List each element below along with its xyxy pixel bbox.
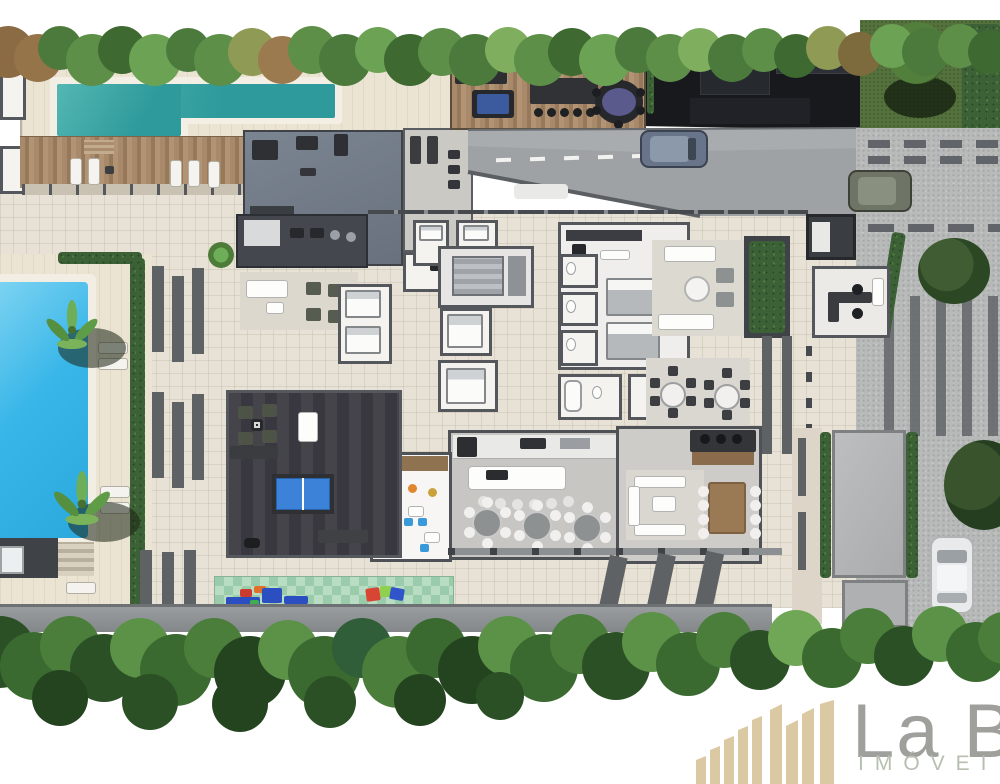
grill-burners: [700, 434, 710, 444]
dark-box-interior: [812, 222, 830, 252]
white-sofa: [634, 476, 686, 488]
armchair: [306, 282, 321, 295]
table-chairs: [582, 502, 593, 513]
hatchback-windshield: [688, 138, 696, 160]
office-desk-return: [828, 292, 839, 322]
bar-stools: [534, 108, 543, 117]
foosball-table: [298, 412, 318, 442]
bistro-chairs: [722, 368, 732, 378]
bathtub: [564, 380, 582, 412]
logo-building-icon: [696, 700, 848, 784]
hall-fridge: [457, 437, 477, 457]
bistro-table: [714, 384, 740, 410]
armchair: [262, 430, 277, 443]
island-cooktop: [486, 470, 508, 480]
gym-bench: [300, 168, 316, 176]
sun-lounger: [208, 161, 220, 188]
white-vehicle-roof: [514, 184, 568, 199]
pergola-shadow-row: [22, 184, 260, 195]
bistro-table: [660, 382, 686, 408]
outdoor-chair: [716, 292, 734, 307]
hall-sink: [560, 438, 590, 449]
walkway-stripe: [192, 394, 204, 480]
roof-skylight: [244, 220, 280, 246]
gym-bench-press: [296, 136, 318, 150]
pool-cabana: [0, 546, 24, 574]
staircase: [452, 256, 504, 296]
armchair: [306, 308, 321, 321]
treadmill: [410, 136, 421, 164]
walkway-stripe-long: [762, 336, 772, 454]
sun-lounger: [88, 158, 100, 185]
office-shelf: [872, 278, 884, 306]
kids-table: [408, 506, 424, 517]
toy-ball: [428, 488, 437, 497]
plan-fence-top: [368, 210, 808, 214]
stair-landing: [508, 256, 526, 296]
kitchen-island: [600, 250, 630, 260]
potted-palm: [208, 242, 234, 268]
roof-chair: [290, 228, 304, 238]
sun-lounger: [70, 158, 82, 185]
office-chair: [852, 284, 863, 295]
round-dining-table: [522, 511, 552, 541]
poker-table-top: [602, 88, 636, 116]
wood-deck: [20, 136, 256, 188]
paver-strip-row: [868, 156, 1000, 164]
walkway-stripe: [172, 402, 184, 488]
coffee-table: [652, 496, 676, 512]
sun-lounger: [170, 160, 182, 187]
card-table: [251, 419, 263, 431]
roof-sphere: [330, 230, 340, 240]
garage-hedge-right: [906, 432, 918, 578]
garage-walkway-stripe: [798, 438, 806, 496]
garage-walkway-stripe: [798, 512, 806, 570]
bed: [345, 290, 381, 318]
office-chair: [852, 308, 863, 319]
white-sofa: [634, 524, 686, 536]
garage-roof: [832, 430, 906, 578]
pingpong-net-line: [302, 478, 304, 510]
toilet: [566, 300, 576, 313]
garage-hedge-left: [820, 432, 831, 578]
kids-table: [424, 532, 440, 543]
outdoor-chair: [716, 268, 734, 283]
bathroom: [560, 330, 598, 366]
outdoor-sofa: [658, 314, 714, 330]
logo-tagline-text: IMÓVEI: [858, 752, 998, 776]
coffee-table: [266, 302, 284, 314]
table-chairs: [482, 497, 493, 508]
tree-row-bottom: [0, 582, 1000, 760]
toy-orange: [408, 484, 417, 493]
roof-sphere: [346, 232, 356, 242]
gym-squat-rack: [334, 134, 348, 156]
suv-car-roof: [858, 177, 896, 205]
toy-kart: [244, 538, 260, 548]
outdoor-sofa: [664, 246, 716, 262]
toilet: [592, 386, 602, 399]
wood-steps: [84, 140, 114, 154]
paver-strip-row: [868, 140, 1000, 148]
walkway-stripe: [172, 276, 184, 362]
site-plan-render: La B IMÓVEI: [0, 0, 1000, 784]
roof-chair: [310, 228, 324, 238]
sun-lounger: [188, 160, 200, 187]
hall-fence-row: [448, 548, 782, 555]
walkway-stripe-long: [782, 336, 792, 454]
bed: [345, 326, 381, 354]
dining-chairs: [698, 486, 709, 497]
treadmill: [427, 136, 438, 164]
kitchen-counter: [566, 230, 642, 241]
white-car-windshield: [937, 550, 967, 563]
toilet: [566, 338, 576, 351]
dark-sofa: [318, 530, 368, 543]
side-table: [105, 166, 114, 174]
tree-over-parking: [918, 238, 990, 304]
palm-trees: [30, 300, 170, 560]
billiards-felt: [477, 94, 509, 114]
lap-pool-water2: [57, 84, 181, 136]
paver-strips-vertical: [884, 296, 1000, 436]
armchair: [262, 404, 277, 417]
bed: [419, 225, 443, 241]
wood-dining-table: [708, 482, 746, 534]
toilet: [566, 262, 576, 275]
kids-chair-blue: [420, 544, 429, 552]
round-dining-table: [572, 513, 602, 543]
gym-cable-machine: [252, 140, 278, 160]
armchair: [238, 406, 253, 419]
bbq-cabinet-wood: [692, 452, 754, 465]
hall-island-bar: [468, 466, 566, 490]
hall-cooktop: [520, 438, 546, 449]
table-chairs: [532, 500, 543, 511]
white-sofa: [628, 486, 640, 526]
paver-strip-row: [868, 224, 1000, 232]
bistro-chairs: [668, 366, 678, 376]
lounge-sofa: [246, 280, 288, 298]
hatchback-car-roof: [650, 136, 690, 162]
bed: [463, 225, 489, 241]
kids-chair-blue: [404, 518, 413, 526]
tree-row-top: [0, 8, 1000, 90]
armchair: [238, 432, 253, 445]
hedge-planter: [749, 241, 785, 333]
hedge-row-top: [58, 252, 142, 264]
dark-sofa: [230, 446, 278, 459]
walkway-stripe: [192, 268, 204, 354]
round-table: [684, 276, 710, 302]
kids-chair-blue: [418, 518, 427, 526]
round-dining-table: [472, 508, 502, 538]
bed: [447, 314, 483, 348]
bed: [446, 368, 486, 404]
